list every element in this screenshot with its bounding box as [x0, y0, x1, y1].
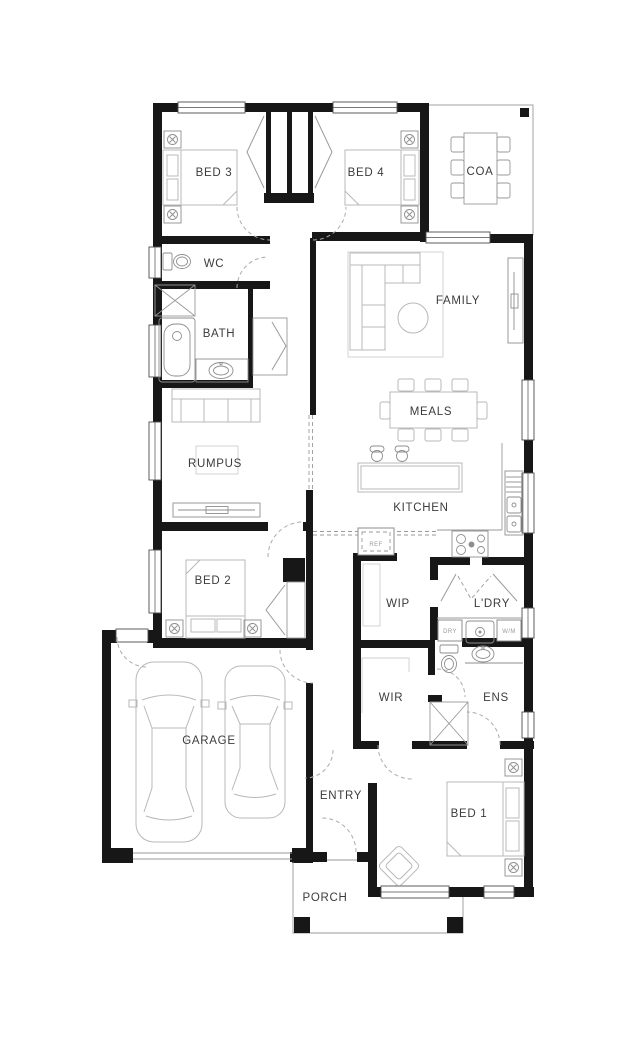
- room-label-garage: GARAGE: [182, 735, 235, 747]
- window: [522, 473, 534, 533]
- wardrobe-icon: [266, 582, 305, 638]
- wardrobe-icon: [315, 116, 332, 188]
- room-bed1: BED 1: [378, 759, 524, 887]
- window: [149, 422, 161, 480]
- window: [484, 886, 514, 898]
- window: [381, 886, 449, 898]
- stool-icon: [370, 446, 409, 462]
- room-label-ens: ENS: [483, 692, 509, 704]
- bathtub-icon: [159, 318, 195, 382]
- tv-unit-icon: [508, 258, 523, 343]
- window: [522, 380, 534, 440]
- room-kitchen: REF KITCHEN: [358, 443, 523, 557]
- window: [149, 247, 161, 278]
- door-swing: [237, 207, 270, 240]
- bed-icon: [186, 560, 245, 638]
- sofa-icon: [172, 389, 260, 422]
- coffee-table-icon: [398, 303, 428, 333]
- room-label-rumpus: RUMPUS: [188, 458, 242, 470]
- washing-machine-icon: W/M: [497, 620, 521, 641]
- room-label-meals: MEALS: [410, 406, 453, 418]
- room-meals: MEALS: [380, 379, 487, 441]
- room-wc: WC: [163, 253, 224, 270]
- windows: [116, 102, 534, 898]
- toilet-icon: [440, 645, 458, 673]
- floor-plan-page: COA: [0, 0, 639, 1039]
- room-bath: BATH: [155, 285, 287, 382]
- porch-post: [294, 917, 310, 933]
- room-label-bed4: BED 4: [348, 167, 385, 179]
- dryer-icon: DRY: [438, 620, 462, 641]
- armchair-icon: [378, 845, 420, 887]
- room-family: FAMILY: [348, 252, 523, 357]
- washer-label: W/M: [502, 629, 516, 635]
- room-bed3: BED 3: [163, 116, 264, 223]
- tv-unit-icon: [173, 503, 260, 517]
- room-wip: WIP: [363, 564, 410, 626]
- kitchen-island-icon: [358, 463, 462, 492]
- room-ldry: DRY W/M L'DRY: [437, 574, 523, 643]
- room-wir: WIR: [362, 658, 409, 713]
- door-swing: [378, 745, 412, 779]
- bedside-table-icon: [164, 131, 181, 223]
- robe-shelf-icon: [362, 658, 409, 713]
- bedside-table-icon: [166, 620, 261, 637]
- room-coa: COA: [425, 105, 533, 235]
- room-label-coa: COA: [466, 166, 493, 178]
- toilet-icon: [163, 253, 191, 270]
- room-label-porch: PORCH: [302, 892, 347, 904]
- door-swing: [467, 712, 500, 745]
- room-label-bed3: BED 3: [196, 167, 233, 179]
- room-label-bath: BATH: [203, 328, 236, 340]
- room-label-bed1: BED 1: [451, 808, 488, 820]
- room-label-bed2: BED 2: [195, 575, 232, 587]
- wardrobe-icon: [247, 116, 264, 188]
- sliding-door: [426, 232, 490, 243]
- room-label-entry: ENTRY: [320, 790, 362, 802]
- porch-post: [520, 108, 529, 117]
- room-label-wir: WIR: [379, 692, 403, 704]
- door-swing: [437, 669, 465, 697]
- window: [149, 550, 161, 613]
- room-label-family: FAMILY: [436, 295, 480, 307]
- window: [522, 712, 534, 738]
- room-ens: ENS: [430, 645, 523, 745]
- porch-post: [447, 917, 463, 933]
- pantry-shelf-icon: [363, 564, 380, 626]
- room-label-kitchen: KITCHEN: [393, 502, 448, 514]
- garage-door-line: [133, 853, 292, 859]
- bedside-table-icon: [401, 131, 418, 223]
- room-bed4: BED 4: [315, 116, 419, 223]
- garage-entry-door: [116, 629, 148, 642]
- cooktop-icon: [452, 531, 488, 557]
- door-swing: [322, 818, 356, 852]
- cupboard-door-icon: [441, 574, 517, 601]
- room-rumpus: RUMPUS: [172, 389, 260, 517]
- window: [522, 608, 534, 638]
- opening-dashes: [309, 415, 437, 535]
- fridge-label: REF: [369, 542, 382, 548]
- window: [178, 102, 245, 113]
- window: [333, 102, 397, 113]
- door-swing: [268, 522, 303, 557]
- linen-cupboard-icon: [253, 318, 287, 375]
- room-garage: GARAGE: [129, 662, 292, 859]
- room-label-wip: WIP: [386, 598, 410, 610]
- room-label-wc: WC: [204, 258, 225, 270]
- vanity-basin-icon: [196, 359, 248, 382]
- dryer-label: DRY: [443, 629, 457, 635]
- fridge-icon: REF: [358, 528, 394, 555]
- vanity-basin-icon: [465, 646, 523, 663]
- car-icon: [129, 662, 209, 842]
- kitchen-sink-icon: [505, 471, 523, 535]
- floor-plan: COA: [0, 0, 639, 1039]
- exterior-walls: [102, 103, 534, 897]
- room-label-ldry: L'DRY: [474, 598, 510, 610]
- shower-icon: [430, 702, 468, 745]
- sofa-icon: [350, 253, 420, 350]
